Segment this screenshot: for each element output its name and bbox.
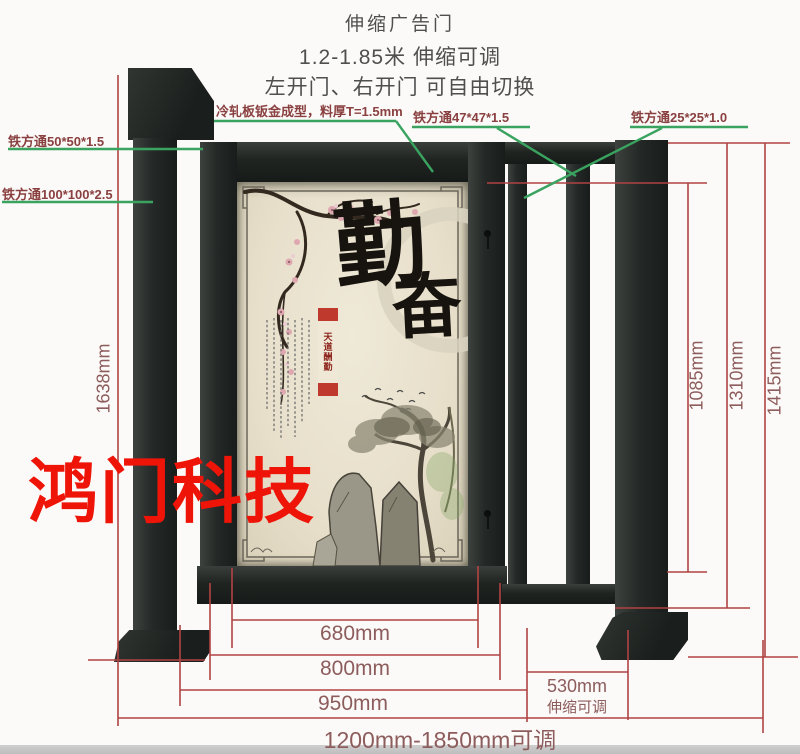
- callout-tube50: 铁方通50*50*1.5: [8, 131, 104, 150]
- green-callout-lines: [2, 121, 748, 202]
- callout-tube47: 铁方通47*47*1.5: [413, 107, 509, 126]
- dim-530: 530mm: [527, 676, 627, 697]
- callout-cold-rolled: 冷轧板钣金成型，料厚T=1.5mm: [216, 101, 403, 120]
- gate-diagram: 伸缩广告门 1.2-1.85米 伸缩可调 左开门、右开门 可自由切换: [0, 0, 800, 754]
- dim-530-note: 伸缩可调: [527, 696, 627, 717]
- dim-800: 800mm: [300, 657, 410, 681]
- dim-left-height: 1638mm: [94, 324, 115, 434]
- dim-1415: 1415mm: [765, 326, 786, 436]
- callout-tube100: 铁方通100*100*2.5: [2, 184, 113, 203]
- callout-tube25: 铁方通25*25*1.0: [631, 107, 727, 126]
- dim-680: 680mm: [300, 622, 410, 646]
- dim-1085: 1085mm: [687, 321, 708, 431]
- dim-1310: 1310mm: [727, 321, 748, 431]
- dim-950: 950mm: [298, 692, 408, 716]
- watermark-text: 鸿门科技: [28, 454, 316, 531]
- dim-total-width: 1200mm-1850mm可调: [240, 721, 640, 754]
